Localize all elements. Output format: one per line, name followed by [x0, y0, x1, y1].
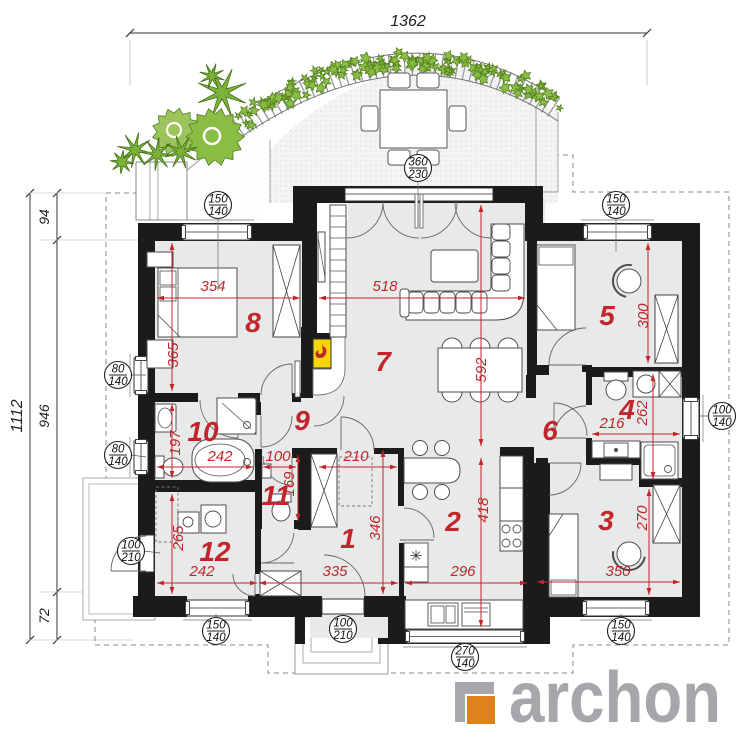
svg-text:265: 265 — [170, 525, 187, 552]
svg-text:270: 270 — [454, 646, 475, 658]
svg-text:100: 100 — [712, 405, 732, 417]
svg-text:140: 140 — [108, 376, 128, 388]
svg-text:72: 72 — [36, 608, 52, 624]
svg-text:12: 12 — [199, 536, 231, 567]
svg-text:242: 242 — [206, 448, 233, 465]
svg-text:150: 150 — [208, 194, 228, 206]
svg-text:11: 11 — [261, 480, 290, 511]
svg-text:80: 80 — [112, 444, 125, 456]
svg-text:346: 346 — [367, 515, 384, 541]
svg-text:296: 296 — [449, 563, 476, 580]
svg-text:140: 140 — [455, 658, 475, 670]
svg-text:150: 150 — [206, 620, 226, 632]
svg-text:300: 300 — [635, 303, 652, 329]
svg-text:100: 100 — [265, 448, 291, 465]
svg-text:262: 262 — [634, 400, 651, 427]
svg-text:archon: archon — [509, 658, 721, 738]
svg-text:350: 350 — [605, 563, 631, 580]
svg-text:94: 94 — [36, 209, 52, 225]
svg-text:1362: 1362 — [390, 13, 426, 30]
svg-text:100: 100 — [121, 540, 141, 552]
svg-text:1112: 1112 — [9, 399, 26, 432]
svg-text:150: 150 — [606, 194, 626, 206]
svg-text:80: 80 — [112, 364, 125, 376]
svg-text:140: 140 — [611, 632, 631, 644]
svg-text:1: 1 — [340, 523, 356, 554]
svg-text:270: 270 — [634, 505, 651, 532]
svg-text:3: 3 — [598, 505, 614, 536]
svg-text:360: 360 — [408, 157, 428, 169]
svg-text:354: 354 — [200, 278, 225, 295]
svg-text:335: 335 — [322, 563, 348, 580]
svg-text:10: 10 — [187, 416, 219, 447]
svg-text:518: 518 — [372, 278, 398, 295]
svg-text:4: 4 — [618, 394, 635, 425]
svg-text:592: 592 — [473, 357, 490, 383]
svg-text:2: 2 — [444, 506, 461, 537]
svg-text:8: 8 — [245, 307, 261, 338]
svg-text:140: 140 — [208, 206, 228, 218]
svg-text:365: 365 — [165, 342, 182, 368]
svg-text:946: 946 — [36, 404, 52, 428]
svg-text:418: 418 — [475, 497, 492, 523]
svg-text:7: 7 — [375, 346, 392, 377]
svg-text:140: 140 — [712, 417, 732, 429]
svg-text:210: 210 — [342, 448, 369, 465]
svg-text:✳: ✳ — [410, 548, 423, 565]
svg-text:6: 6 — [542, 415, 558, 446]
svg-text:140: 140 — [206, 632, 226, 644]
svg-text:100: 100 — [333, 618, 353, 630]
svg-text:9: 9 — [294, 405, 310, 436]
svg-text:197: 197 — [167, 430, 184, 456]
svg-text:230: 230 — [407, 169, 428, 181]
svg-text:5: 5 — [599, 300, 615, 331]
svg-text:210: 210 — [120, 552, 141, 564]
svg-text:140: 140 — [108, 456, 128, 468]
svg-text:210: 210 — [332, 630, 353, 642]
svg-text:140: 140 — [606, 206, 626, 218]
svg-text:150: 150 — [611, 620, 631, 632]
